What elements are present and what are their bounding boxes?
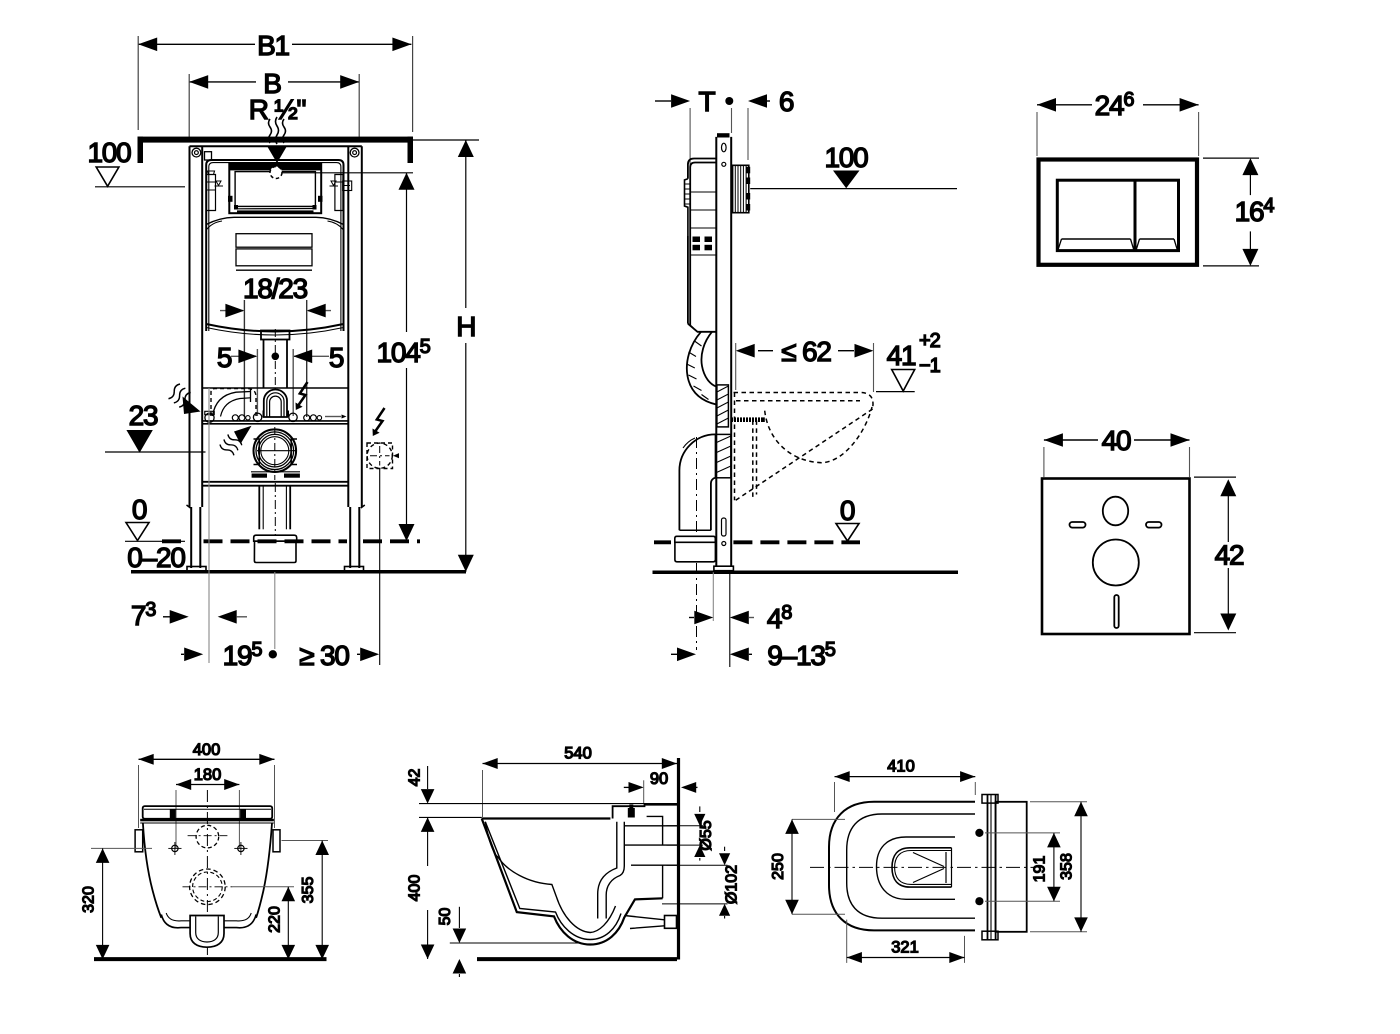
- svg-text:0: 0: [840, 495, 855, 526]
- svg-text:191: 191: [1032, 856, 1049, 883]
- svg-text:358: 358: [1059, 853, 1076, 880]
- svg-text:Ø102: Ø102: [724, 865, 741, 904]
- svg-text:250: 250: [770, 853, 787, 880]
- svg-text:220: 220: [267, 906, 284, 933]
- svg-text:H: H: [456, 311, 475, 342]
- svg-text:42: 42: [407, 769, 424, 787]
- svg-text:40: 40: [1102, 425, 1131, 456]
- svg-text:41: 41: [887, 340, 916, 371]
- svg-text:321: 321: [891, 939, 919, 957]
- svg-text:100: 100: [87, 137, 131, 168]
- svg-text:100: 100: [824, 142, 868, 173]
- svg-text:R ½": R ½": [249, 94, 306, 125]
- svg-text:180: 180: [194, 766, 222, 784]
- svg-text:50: 50: [437, 908, 454, 926]
- svg-text:0–20: 0–20: [127, 542, 185, 573]
- svg-text:320: 320: [81, 886, 98, 913]
- svg-text:6: 6: [779, 86, 794, 117]
- svg-text:0: 0: [132, 494, 147, 525]
- svg-text:90: 90: [650, 770, 668, 788]
- svg-text:410: 410: [887, 758, 915, 776]
- svg-text:≥ 30: ≥ 30: [299, 640, 349, 671]
- svg-text:+2: +2: [919, 330, 941, 352]
- svg-text:42: 42: [1215, 540, 1244, 571]
- svg-text:T: T: [699, 86, 716, 117]
- svg-text:−1: −1: [919, 355, 941, 377]
- svg-text:18/23: 18/23: [243, 273, 308, 304]
- svg-text:5: 5: [329, 342, 344, 373]
- svg-text:Ø55: Ø55: [698, 820, 715, 850]
- svg-text:B1: B1: [257, 30, 289, 61]
- svg-text:400: 400: [407, 875, 424, 902]
- svg-text:5: 5: [217, 342, 232, 373]
- svg-text:400: 400: [193, 741, 221, 759]
- svg-text:23: 23: [129, 400, 158, 431]
- svg-text:≤ 62: ≤ 62: [781, 336, 831, 367]
- svg-text:355: 355: [300, 877, 317, 904]
- svg-text:540: 540: [564, 745, 592, 763]
